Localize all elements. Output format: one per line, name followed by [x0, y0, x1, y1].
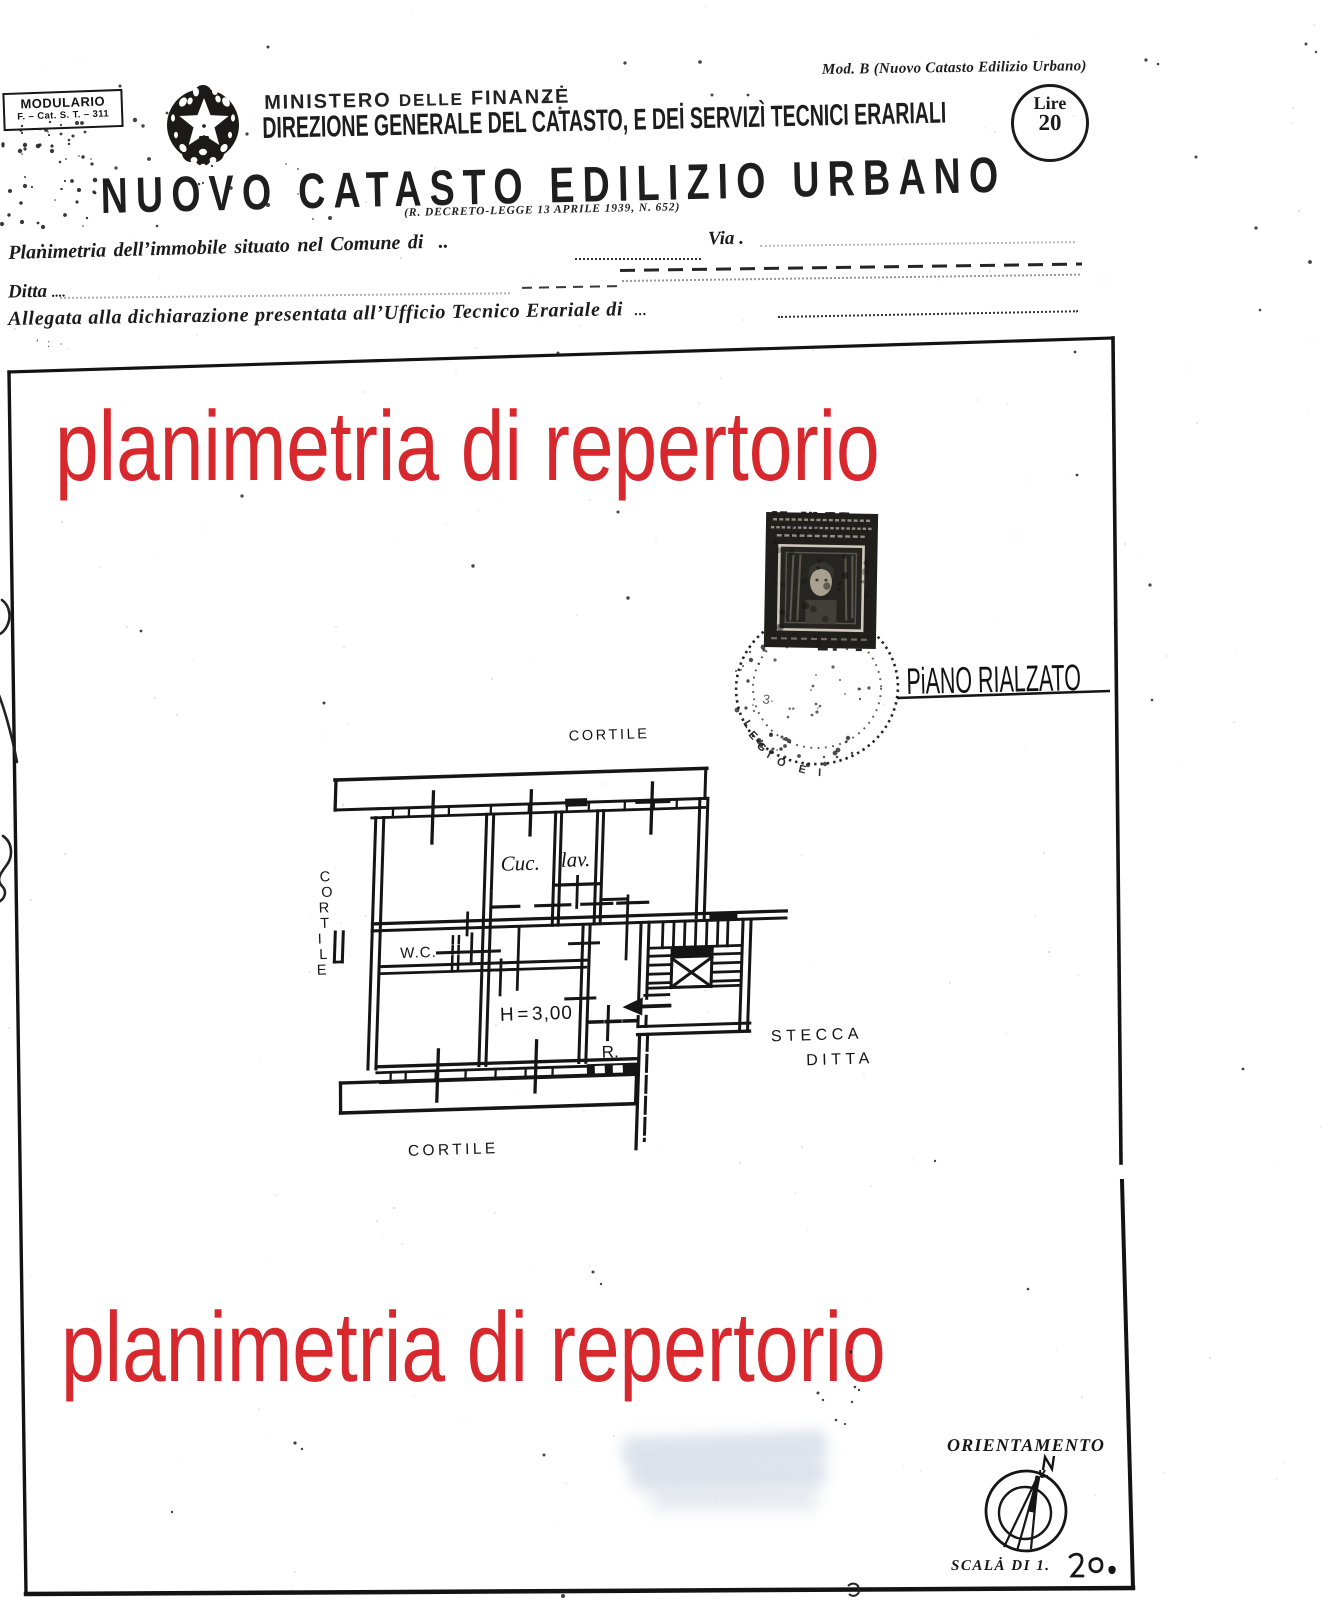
svg-text:3·: 3·: [761, 691, 775, 708]
svg-text:L: L: [319, 947, 328, 963]
svg-text:••: ••: [788, 704, 796, 715]
svg-text:I: I: [818, 767, 821, 779]
svg-text:C: C: [320, 869, 331, 885]
svg-text:I: I: [318, 931, 323, 947]
svg-text:Cuc.: Cuc.: [500, 851, 540, 876]
svg-text:H = 3,00: H = 3,00: [500, 1003, 574, 1026]
svg-text:CORTILE: CORTILE: [408, 1140, 499, 1160]
svg-text:W.C.: W.C.: [400, 944, 437, 962]
svg-text:STECCA: STECCA: [771, 1026, 863, 1046]
svg-text:E: E: [797, 763, 807, 776]
svg-text:T: T: [320, 916, 329, 932]
svg-text:R: R: [319, 900, 330, 916]
svg-text:lav.: lav.: [560, 847, 590, 872]
svg-text:CORTILE: CORTILE: [569, 726, 650, 745]
svg-text:DITTA: DITTA: [806, 1050, 874, 1069]
svg-text:O: O: [321, 885, 333, 901]
svg-text:E: E: [317, 962, 327, 978]
svg-text:R.: R.: [601, 1042, 619, 1062]
